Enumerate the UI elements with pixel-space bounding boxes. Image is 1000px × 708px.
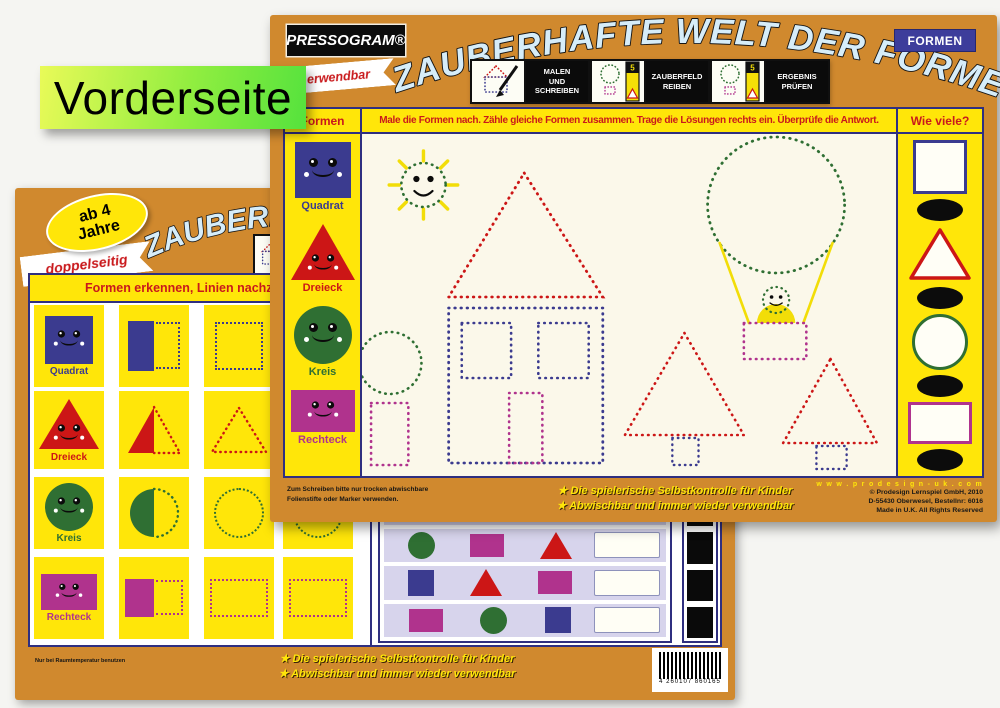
answer-box xyxy=(594,532,660,558)
table-row xyxy=(384,566,666,600)
barcode-digits: 4 260107 860165 xyxy=(659,679,721,685)
grid-cell-triangle-solid: Dreieck xyxy=(34,391,104,469)
fir-tree-2 xyxy=(783,359,877,469)
website: w w w . p r o d e s i g n - u k . c o m xyxy=(816,481,983,488)
circle-shape xyxy=(45,483,93,531)
zauberfeld-ellipse xyxy=(917,449,963,471)
hot-air-balloon xyxy=(708,137,845,359)
legend-square: Quadrat xyxy=(295,142,351,212)
grid-cell-circle-half xyxy=(119,477,189,549)
answer-triangle-outline xyxy=(907,226,973,282)
answer-box xyxy=(594,570,660,596)
barcode-bars xyxy=(659,652,721,679)
step-label-draw: MALEN UND SCHREIBEN xyxy=(524,59,590,104)
triangle-shape xyxy=(37,398,101,450)
credits: w w w . p r o d e s i g n - u k . c o m … xyxy=(816,481,983,516)
grid-cell-triangle-half xyxy=(119,391,189,469)
tree xyxy=(362,332,421,465)
grid-cell-rect-half xyxy=(119,557,189,639)
sun xyxy=(389,151,458,219)
back-footnote: Nur bei Raumtemperatur benutzen xyxy=(35,658,125,664)
grid-label: Dreieck xyxy=(51,452,87,463)
rub-field-icon: 5 xyxy=(590,59,644,104)
grid-label: Rechteck xyxy=(47,612,91,623)
legend-circle: Kreis xyxy=(294,306,352,378)
grid-cell-circle-dotted xyxy=(204,477,274,549)
zauberfeld-ellipse xyxy=(917,199,963,221)
zauberfeld-ellipse xyxy=(917,287,963,309)
legend-triangle: Dreieck xyxy=(290,224,356,294)
rectangle-shape xyxy=(41,574,97,610)
grid-cell-triangle-dotted xyxy=(204,391,274,469)
how-many-column: Wie viele? xyxy=(896,109,982,476)
zauberfeld-ellipse xyxy=(917,375,963,397)
step-label-rub: ZAUBERFELD REIBEN xyxy=(644,59,710,104)
grid-cell-rect-dotted-2 xyxy=(283,557,353,639)
check-result-icon: 5 xyxy=(710,59,764,104)
grid-cell-square-solid: Quadrat xyxy=(34,305,104,387)
grid-cell-square-half xyxy=(119,305,189,387)
front-footer-bullets: ★ Die spielerische Selbstkontrolle für K… xyxy=(550,484,800,514)
svg-text:5: 5 xyxy=(750,64,755,73)
formen-badge: FORMEN xyxy=(894,29,976,52)
fir-tree-1 xyxy=(625,333,744,465)
how-to-steps: MALEN UND SCHREIBEN 5 ZAUBERFELD REIBEN … xyxy=(470,59,830,104)
square-shape xyxy=(45,316,93,364)
vorderseite-label: Vorderseite xyxy=(40,66,306,129)
answer-rect-outline xyxy=(908,402,972,444)
svg-text:5: 5 xyxy=(630,64,635,73)
grid-cell-rect-dotted xyxy=(204,557,274,639)
back-footer-bullets: ★ Die spielerische Selbstkontrolle für K… xyxy=(267,652,527,683)
grid-label: Kreis xyxy=(56,533,81,544)
answer-circle-outline xyxy=(912,314,968,370)
grid-cell-square-dotted xyxy=(204,305,274,387)
grid-cell-circle-solid: Kreis xyxy=(34,477,104,549)
shapes-legend: Formen Quadrat Dreieck xyxy=(285,109,362,476)
grid-cell-rect-solid: Rechteck xyxy=(34,557,104,639)
front-card: PRESSOGRAM® ZAUBERHAFTE WELT DER FORMEN … xyxy=(270,15,997,522)
front-worksheet-panel: Formen Quadrat Dreieck xyxy=(283,107,984,478)
answer-square-outline xyxy=(913,140,967,194)
circle-shape xyxy=(294,306,352,364)
triangle-shape xyxy=(290,224,356,280)
table-row xyxy=(384,604,666,638)
house xyxy=(449,173,603,463)
rectangle-shape xyxy=(291,390,355,432)
tracing-scene xyxy=(362,134,896,476)
grid-label: Quadrat xyxy=(50,366,88,377)
draw-icon xyxy=(470,59,524,104)
square-shape xyxy=(295,142,351,198)
step-label-check: ERGEBNIS PRÜFEN xyxy=(764,59,830,104)
table-row xyxy=(384,529,666,563)
answer-box xyxy=(594,607,660,633)
marker-footnote: Zum Schreiben bitte nur trocken abwischb… xyxy=(287,485,428,505)
task-instruction: Male die Formen nach. Zähle gleiche Form… xyxy=(362,109,896,134)
legend-rectangle: Rechteck xyxy=(291,390,355,446)
barcode: 4 260107 860165 xyxy=(652,648,728,692)
how-many-header: Wie viele? xyxy=(898,109,982,134)
